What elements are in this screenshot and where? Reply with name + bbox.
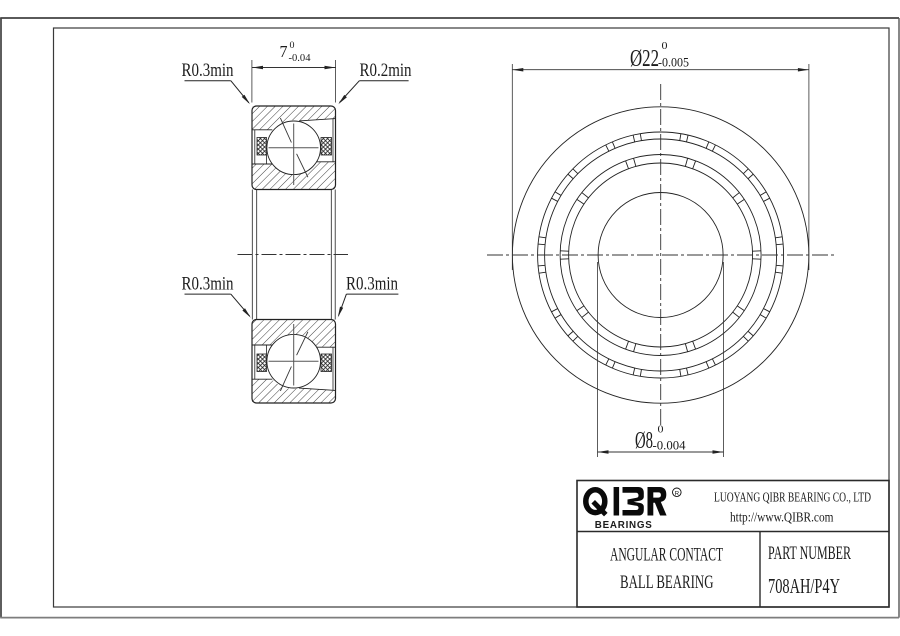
svg-text:Ø22: Ø22 bbox=[630, 46, 659, 72]
svg-text:7: 7 bbox=[280, 42, 288, 61]
svg-text:-0.04: -0.04 bbox=[289, 52, 311, 64]
svg-text:BEARINGS: BEARINGS bbox=[595, 520, 652, 531]
svg-text:0: 0 bbox=[290, 40, 296, 50]
svg-text:-0.004: -0.004 bbox=[653, 439, 687, 453]
svg-text:708AH/P4Y: 708AH/P4Y bbox=[768, 574, 840, 598]
svg-text:-0.005: -0.005 bbox=[658, 56, 689, 70]
svg-text:R: R bbox=[675, 490, 680, 497]
svg-text:BALL BEARING: BALL BEARING bbox=[620, 572, 714, 593]
svg-text:R0.3min: R0.3min bbox=[182, 274, 234, 295]
svg-text:ANGULAR CONTACT: ANGULAR CONTACT bbox=[610, 545, 723, 566]
svg-text:Ø8: Ø8 bbox=[635, 428, 653, 454]
svg-text:R0.3min: R0.3min bbox=[182, 60, 234, 81]
svg-text:PART NUMBER: PART NUMBER bbox=[768, 543, 851, 564]
svg-text:LUOYANG QIBR BEARING CO., LTD: LUOYANG QIBR BEARING CO., LTD bbox=[714, 491, 871, 506]
svg-text:0: 0 bbox=[658, 425, 664, 436]
svg-text:http://www.QIBR.com: http://www.QIBR.com bbox=[730, 511, 834, 526]
svg-text:R0.2min: R0.2min bbox=[360, 60, 412, 81]
svg-text:0: 0 bbox=[662, 41, 668, 52]
svg-text:R0.3min: R0.3min bbox=[346, 274, 398, 295]
